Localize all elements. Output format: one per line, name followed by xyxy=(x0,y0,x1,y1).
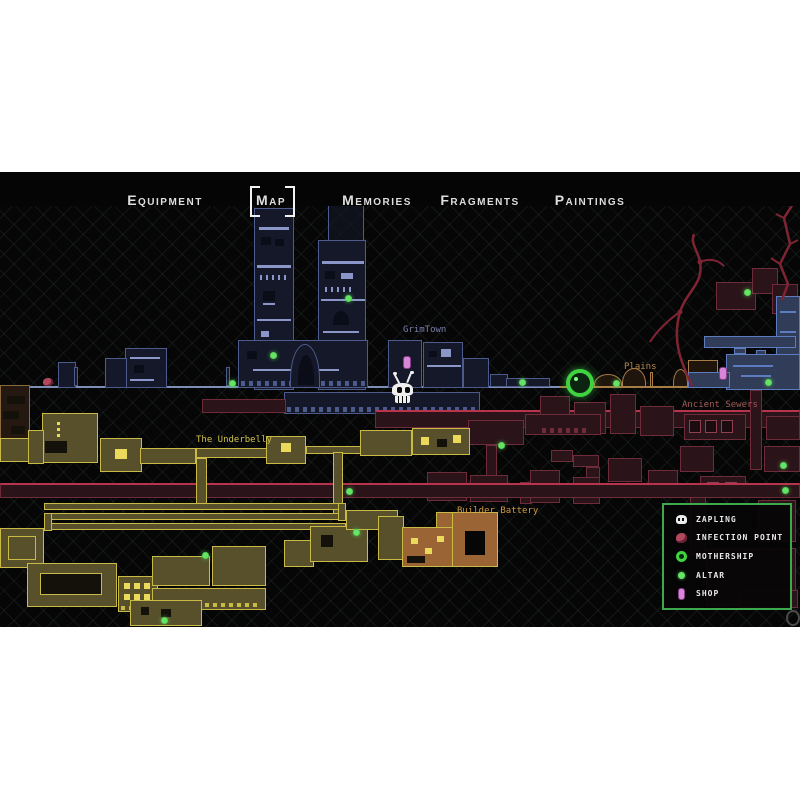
legend-label: Mothership xyxy=(696,552,754,561)
builder-room xyxy=(402,527,456,567)
corner-ring-icon xyxy=(786,610,800,626)
tab-memories[interactable]: Memories xyxy=(342,192,412,208)
surface-building xyxy=(105,358,127,388)
grimtown-building xyxy=(506,378,550,387)
tab-paintings[interactable]: Paintings xyxy=(555,192,626,208)
altar-marker xyxy=(498,442,505,449)
altar-icon xyxy=(675,572,688,579)
altar-marker xyxy=(744,289,751,296)
tab-map[interactable]: Map xyxy=(256,192,286,208)
grimtown-building xyxy=(463,358,489,388)
altar-marker xyxy=(161,617,168,624)
legend-label: Shop xyxy=(696,589,719,598)
surface-building xyxy=(125,348,167,388)
underbelly-room xyxy=(412,428,470,455)
altar-marker xyxy=(353,529,360,536)
legend-row-zapling: Zapling xyxy=(675,513,790,526)
legend-row-shop: Shop xyxy=(675,587,790,600)
mothership-icon xyxy=(675,551,688,562)
altar-marker xyxy=(519,379,526,386)
altar-marker xyxy=(780,462,787,469)
label-underbelly: The Underbelly xyxy=(196,435,272,445)
legend-label: Zapling xyxy=(696,515,737,524)
tab-equipment[interactable]: Equipment xyxy=(127,192,203,208)
altar-marker xyxy=(346,488,353,495)
game-screen: Equipment Map Memories Fragments Paintin… xyxy=(0,172,800,627)
tab-bar: Equipment Map Memories Fragments Paintin… xyxy=(0,172,800,206)
legend-label: Infection Point xyxy=(696,533,783,542)
label-grimtown: GrimTown xyxy=(403,325,446,335)
selected-tab-bracket-right xyxy=(285,186,295,217)
map-legend: Zapling Infection Point Mothership Altar… xyxy=(662,503,792,610)
legend-label: Altar xyxy=(696,571,725,580)
altar-marker xyxy=(782,487,789,494)
label-ancient-sewers: Ancient Sewers xyxy=(682,400,758,410)
zapling-icon xyxy=(675,515,688,524)
grimtown-building xyxy=(423,342,463,388)
label-plains: Plains xyxy=(624,362,657,372)
mothership-marker xyxy=(566,369,594,397)
altar-marker xyxy=(202,552,209,559)
underbelly-room xyxy=(42,413,98,463)
legend-row-mothership: Mothership xyxy=(675,550,790,563)
legend-row-infection-point: Infection Point xyxy=(675,531,790,544)
long-sewer-corridor xyxy=(0,483,800,498)
underbelly-corridor xyxy=(196,448,268,458)
screenshot-stage: Equipment Map Memories Fragments Paintin… xyxy=(0,0,800,800)
altar-marker xyxy=(229,380,236,387)
tab-fragments[interactable]: Fragments xyxy=(440,192,519,208)
selected-tab-bracket-left xyxy=(250,186,260,217)
infection-point-icon xyxy=(675,533,688,543)
altar-marker xyxy=(270,352,277,359)
sewers-windowed-room xyxy=(684,414,746,440)
builder-room xyxy=(452,512,498,567)
shop-marker xyxy=(403,356,411,369)
shop-icon xyxy=(675,588,688,600)
altar-marker xyxy=(613,380,620,387)
switchback-corridor xyxy=(44,503,346,510)
shop-marker xyxy=(719,367,727,380)
player-zapling-marker xyxy=(389,372,417,406)
legend-row-altar: Altar xyxy=(675,569,790,582)
label-builder-battery: Builder Battery xyxy=(457,506,538,516)
surface-pole xyxy=(74,367,78,386)
altar-marker xyxy=(345,295,352,302)
altar-marker xyxy=(765,379,772,386)
infection-point-marker xyxy=(43,378,53,386)
